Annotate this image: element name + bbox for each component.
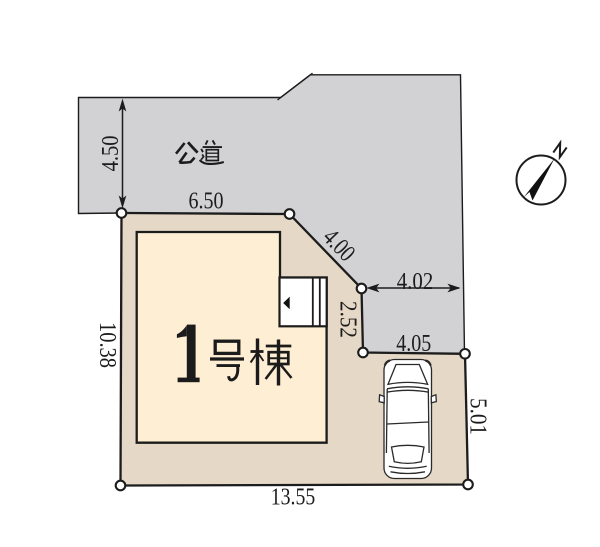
svg-text:4.50: 4.50 bbox=[97, 135, 124, 171]
svg-text:6.50: 6.50 bbox=[189, 188, 224, 215]
svg-text:4.05: 4.05 bbox=[396, 330, 431, 357]
svg-text:10.38: 10.38 bbox=[94, 322, 121, 368]
svg-text:2.52: 2.52 bbox=[335, 301, 362, 338]
svg-text:5.01: 5.01 bbox=[465, 398, 492, 435]
svg-text:4.02: 4.02 bbox=[397, 268, 434, 295]
svg-text:13.55: 13.55 bbox=[271, 484, 316, 511]
